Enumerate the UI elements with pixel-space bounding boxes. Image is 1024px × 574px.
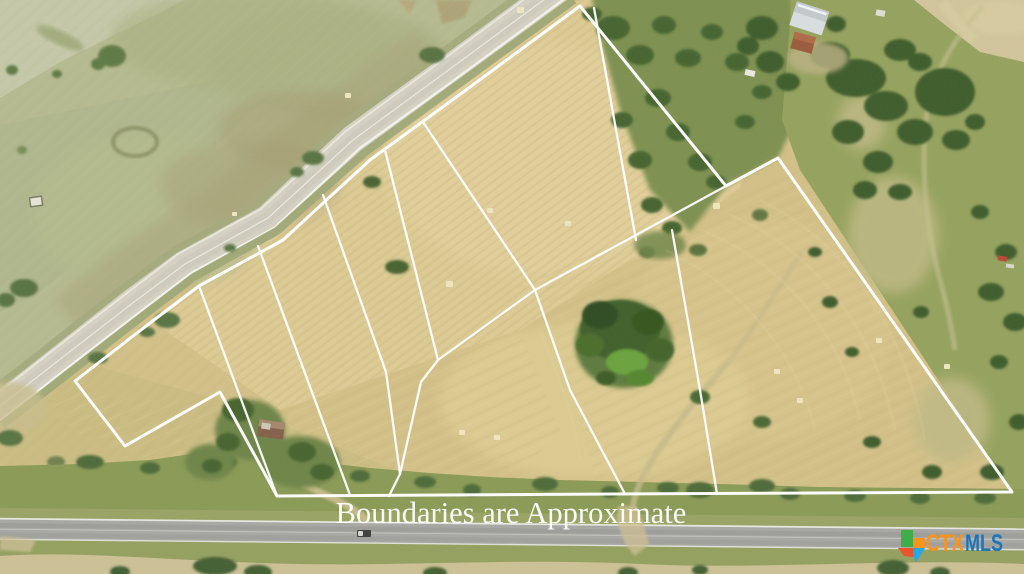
svg-text:CTX: CTX bbox=[926, 530, 964, 557]
svg-text:MLS: MLS bbox=[965, 530, 1003, 557]
svg-text:Boundaries are Approximate: Boundaries are Approximate bbox=[336, 496, 687, 530]
